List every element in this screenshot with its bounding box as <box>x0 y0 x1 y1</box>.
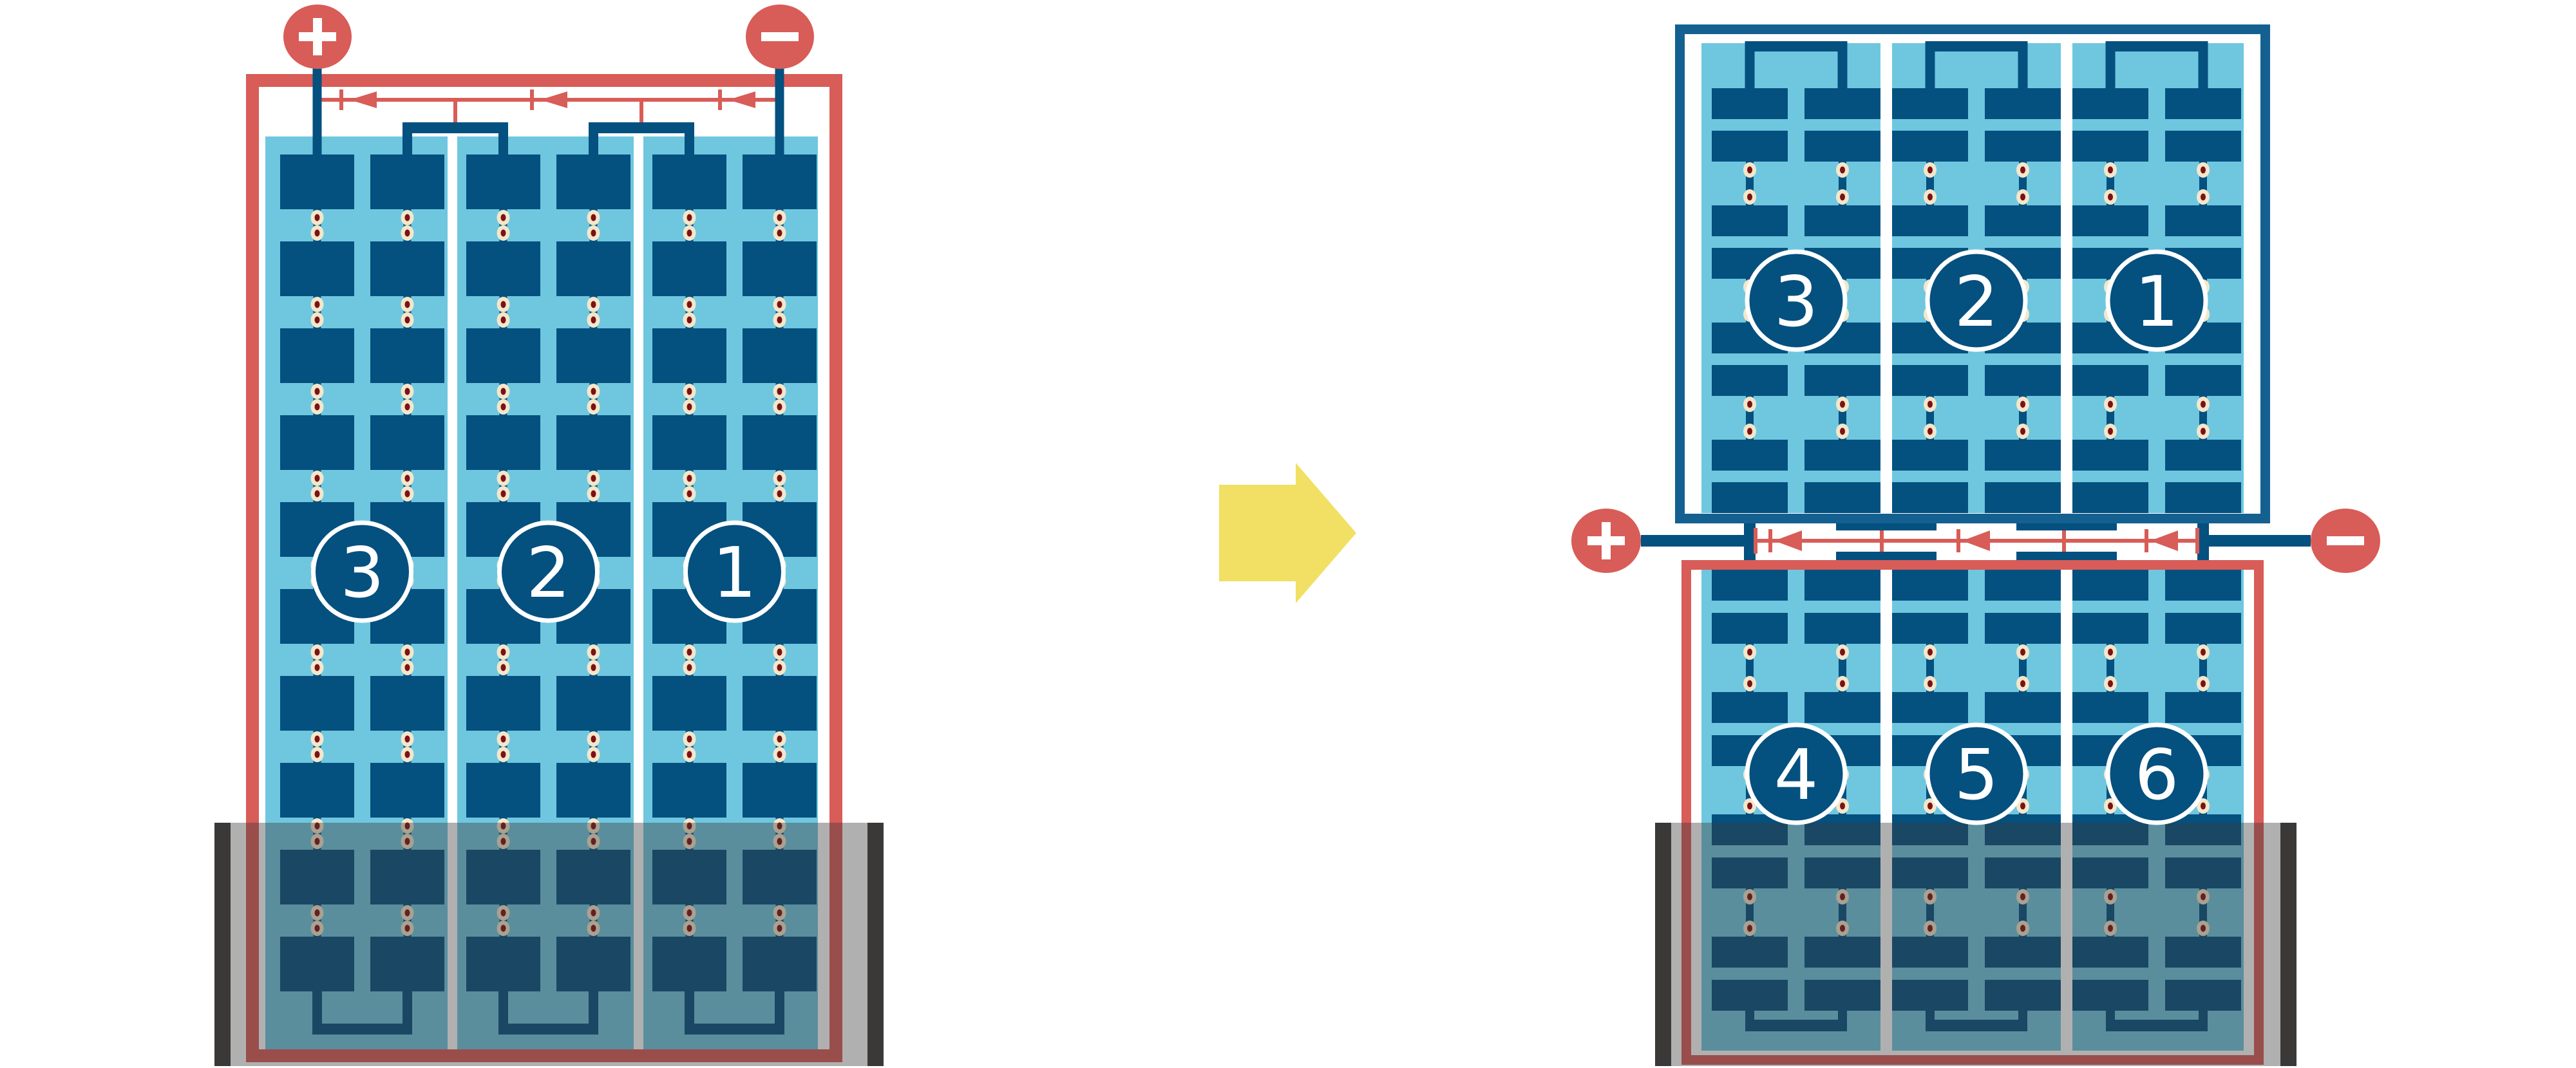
solar-cell <box>2165 131 2241 162</box>
solder-pad-core <box>405 230 410 237</box>
solder-pad-core <box>1747 428 1752 435</box>
solar-cell <box>2072 482 2148 513</box>
string-bridge <box>2106 41 2208 52</box>
solder-pad-core <box>1927 401 1933 408</box>
solder-pad-core <box>1747 401 1752 408</box>
solar-cell <box>280 763 354 818</box>
solder-pad-core <box>2108 194 2113 201</box>
solder-pad-core <box>687 317 692 324</box>
solder-pad-core <box>687 214 692 221</box>
diode-cathode-bar <box>2145 529 2148 552</box>
solder-pad-core <box>687 301 692 308</box>
solder-pad-core <box>777 491 782 498</box>
solder-pad-core <box>777 664 782 671</box>
solar-cell <box>743 155 817 209</box>
solder-pad-core <box>591 736 596 743</box>
solar-cell <box>743 415 817 470</box>
solder-pad-core <box>2020 167 2025 174</box>
solder-pad-core <box>405 475 410 482</box>
solar-cell <box>1985 570 2061 601</box>
string-number: 3 <box>1774 262 1819 342</box>
solder-pad-core <box>501 301 506 308</box>
solar-cell <box>1892 613 1968 644</box>
bypass-diode <box>350 91 377 108</box>
solder-pad-core <box>1840 167 1845 174</box>
solder-pad-core <box>2108 167 2113 174</box>
solar-cell <box>370 328 444 383</box>
solder-pad-core <box>2201 428 2206 435</box>
solder-pad-core <box>2201 803 2206 810</box>
solder-pad-core <box>1927 428 1933 435</box>
solder-pad-core <box>1927 167 1933 174</box>
solder-pad-core <box>591 388 596 395</box>
solder-pad-core <box>1840 680 1845 688</box>
solar-cell <box>1712 440 1788 471</box>
solder-pad-core <box>2201 194 2206 201</box>
solder-pad-core <box>591 664 596 671</box>
string-bridge <box>1838 50 1848 88</box>
string-bridge <box>1926 50 1935 88</box>
solder-pad-core <box>1840 428 1845 435</box>
solar-cell <box>2165 440 2241 471</box>
bypass-diode <box>2150 530 2178 551</box>
solder-pad-core <box>2201 680 2206 688</box>
solar-cell <box>1892 482 1968 513</box>
solder-pad-core <box>315 736 320 743</box>
solar-cell <box>280 241 354 296</box>
solar-cell <box>556 415 630 470</box>
solar-cell <box>370 155 444 209</box>
bypass-diode <box>540 91 567 108</box>
solar-cell <box>1712 131 1788 162</box>
string-number: 4 <box>1774 735 1819 816</box>
solar-cell <box>1804 613 1880 644</box>
solder-pad-core <box>2108 649 2113 656</box>
solder-pad-core <box>2020 803 2025 810</box>
solar-cell <box>2165 570 2241 601</box>
diode-cathode-bar <box>1768 529 1772 552</box>
solder-pad-core <box>777 388 782 395</box>
string-bridge <box>402 132 412 156</box>
solar-cell <box>1892 570 1968 601</box>
diode-tap <box>639 100 643 122</box>
solder-pad-core <box>501 214 506 221</box>
solder-pad-core <box>591 230 596 237</box>
solar-cell <box>2165 482 2241 513</box>
solder-pad-core <box>687 388 692 395</box>
solar-cell <box>370 763 444 818</box>
solar-cell <box>2165 692 2241 723</box>
solder-pad-core <box>1747 167 1752 174</box>
solder-pad-core <box>1840 649 1845 656</box>
solder-pad-core <box>501 388 506 395</box>
minus-icon <box>761 32 799 41</box>
solder-pad-core <box>315 404 320 411</box>
solder-pad-core <box>2108 680 2113 688</box>
solder-pad-core <box>1927 680 1933 688</box>
solder-pad-core <box>501 664 506 671</box>
junction-tab <box>2016 552 2117 560</box>
solar-cell <box>1804 205 1880 236</box>
solder-pad-core <box>777 404 782 411</box>
solder-pad-core <box>591 491 596 498</box>
solder-pad-core <box>501 404 506 411</box>
solar-cell <box>2165 205 2241 236</box>
solder-pad-core <box>315 388 320 395</box>
solder-pad-core <box>2201 649 2206 656</box>
solder-pad-core <box>2020 680 2025 688</box>
string-number: 1 <box>712 533 757 614</box>
solar-cell <box>652 328 726 383</box>
solar-cell <box>1712 692 1788 723</box>
solder-pad-core <box>687 649 692 656</box>
solar-cell <box>280 328 354 383</box>
solder-pad-core <box>1840 194 1845 201</box>
solder-pad-core <box>687 664 692 671</box>
solder-pad-core <box>2108 803 2113 810</box>
solar-cell <box>2072 613 2148 644</box>
terminal-stem <box>775 63 784 155</box>
solar-cell <box>1985 88 2061 119</box>
solar-cell <box>652 763 726 818</box>
string-bridge <box>589 132 598 156</box>
solder-pad-core <box>315 649 320 656</box>
solar-cell <box>2072 205 2148 236</box>
solder-pad-core <box>687 751 692 758</box>
solder-pad-core <box>687 475 692 482</box>
solder-pad-core <box>591 404 596 411</box>
solder-pad-core <box>687 491 692 498</box>
solder-pad-core <box>501 230 506 237</box>
solder-pad-core <box>591 301 596 308</box>
junction-tab <box>1836 552 1937 560</box>
solar-cell <box>2072 131 2148 162</box>
string-bridge <box>1926 41 2028 52</box>
solder-pad-core <box>2020 194 2025 201</box>
water-overlay <box>231 823 867 1066</box>
water-edge-bar <box>214 823 231 1066</box>
solder-pad-core <box>501 491 506 498</box>
solder-pad-core <box>591 317 596 324</box>
solar-cell <box>652 241 726 296</box>
solder-pad-core <box>2201 401 2206 408</box>
solar-cell <box>1892 88 1968 119</box>
solder-pad-core <box>1747 194 1752 201</box>
solar-cell <box>466 241 540 296</box>
solar-cell <box>2165 613 2241 644</box>
solar-cell <box>743 328 817 383</box>
solder-pad-core <box>2108 428 2113 435</box>
solder-pad-core <box>1927 803 1933 810</box>
solar-cell <box>466 415 540 470</box>
solar-cell <box>556 676 630 731</box>
string-number: 2 <box>526 533 571 614</box>
solar-cell <box>1985 482 2061 513</box>
solder-pad-core <box>591 649 596 656</box>
solar-cell <box>652 415 726 470</box>
solar-cell <box>1985 440 2061 471</box>
diagram: 321321456 <box>0 0 2576 1068</box>
solder-pad-core <box>405 649 410 656</box>
diode-tap <box>453 100 457 122</box>
solder-pad-core <box>591 214 596 221</box>
solder-pad-core <box>1747 649 1752 656</box>
solar-cell <box>652 155 726 209</box>
bypass-diode <box>728 91 755 108</box>
solar-cell <box>1712 88 1788 119</box>
solar-cell <box>2072 440 2148 471</box>
diode-cathode-bar <box>530 89 534 110</box>
solar-cell <box>1804 440 1880 471</box>
solder-pad-core <box>405 491 410 498</box>
solder-pad-core <box>405 751 410 758</box>
solder-pad-core <box>315 301 320 308</box>
terminal-wire <box>2209 535 2311 547</box>
solder-pad-core <box>315 230 320 237</box>
negative-terminal <box>746 5 814 69</box>
solder-pad-core <box>315 664 320 671</box>
solder-pad-core <box>1840 803 1845 810</box>
water-edge-bar <box>1655 823 1671 1066</box>
solar-cell <box>743 241 817 296</box>
string-bridge <box>2199 50 2208 88</box>
solar-cell <box>466 763 540 818</box>
solar-cell <box>280 415 354 470</box>
solder-pad-core <box>2201 167 2206 174</box>
solder-pad-core <box>501 649 506 656</box>
junction-tab <box>1836 523 1937 530</box>
solder-pad-core <box>501 317 506 324</box>
bypass-diode <box>1962 530 1990 551</box>
solder-pad-core <box>405 664 410 671</box>
solar-cell <box>1985 365 2061 396</box>
solder-pad-core <box>315 475 320 482</box>
string-bridge <box>685 132 694 156</box>
solder-pad-core <box>687 230 692 237</box>
solder-pad-core <box>777 230 782 237</box>
solder-pad-core <box>777 751 782 758</box>
string-bridge <box>1745 41 1848 52</box>
solar-cell <box>370 415 444 470</box>
solder-pad-core <box>591 751 596 758</box>
solar-cell <box>1712 613 1788 644</box>
solder-pad-core <box>687 404 692 411</box>
flood-overlays <box>214 823 2297 1066</box>
solar-cell <box>1804 692 1880 723</box>
plus-icon <box>1602 522 1611 559</box>
solder-pad-core <box>315 214 320 221</box>
solar-cell <box>1985 692 2061 723</box>
transition-arrow <box>1219 463 1356 603</box>
solar-cell <box>466 155 540 209</box>
junction-bus-end <box>2195 528 2199 554</box>
solar-cell <box>2165 88 2241 119</box>
solar-cell <box>1985 205 2061 236</box>
positive-terminal <box>1571 509 1641 573</box>
solder-pad-core <box>501 736 506 743</box>
solar-cell <box>1985 613 2061 644</box>
solar-cell <box>1892 205 1968 236</box>
solder-pad-core <box>777 301 782 308</box>
solar-cell <box>1712 205 1788 236</box>
solder-pad-core <box>501 751 506 758</box>
solar-cell <box>1892 692 1968 723</box>
water-edge-bar <box>2280 823 2297 1066</box>
solar-cell <box>280 676 354 731</box>
diode-cathode-bar <box>339 89 343 110</box>
string-number: 3 <box>340 533 384 614</box>
solar-cell <box>1712 365 1788 396</box>
terminal-wire <box>1641 535 1744 547</box>
solar-cell <box>1712 570 1788 601</box>
junction-tab <box>2016 523 2117 530</box>
solar-cell <box>1712 482 1788 513</box>
solar-cell <box>556 763 630 818</box>
solder-pad-core <box>315 491 320 498</box>
solar-cell <box>2072 570 2148 601</box>
solder-pad-core <box>1840 401 1845 408</box>
solar-cell <box>370 241 444 296</box>
water-overlay <box>1671 823 2280 1066</box>
junction-bus-end <box>1754 528 1757 554</box>
string-separator <box>1880 43 1892 513</box>
solar-cell <box>466 328 540 383</box>
string-bridge <box>402 122 508 133</box>
solar-cell <box>1804 570 1880 601</box>
string-bridge <box>1745 50 1755 88</box>
solar-cell <box>2072 365 2148 396</box>
solar-cell <box>370 676 444 731</box>
solder-pad-core <box>405 317 410 324</box>
solar-cell <box>556 328 630 383</box>
solar-cell <box>743 763 817 818</box>
string-number: 2 <box>1955 262 1999 342</box>
negative-terminal <box>2311 509 2380 573</box>
solder-pad-core <box>777 475 782 482</box>
solder-pad-core <box>405 404 410 411</box>
right-arrow-icon <box>1219 463 1356 603</box>
solder-pad-core <box>687 736 692 743</box>
solder-pad-core <box>315 317 320 324</box>
solder-pad-core <box>777 317 782 324</box>
string-number: 1 <box>2135 262 2179 342</box>
solder-pad-core <box>777 736 782 743</box>
solder-pad-core <box>405 388 410 395</box>
water-edge-bar <box>867 823 884 1066</box>
solder-pad-core <box>777 649 782 656</box>
string-bridge <box>2018 50 2028 88</box>
solar-cell <box>1892 440 1968 471</box>
solder-pad-core <box>2020 401 2025 408</box>
solder-pad-core <box>1747 680 1752 688</box>
solar-cell <box>2072 88 2148 119</box>
solder-pad-core <box>777 214 782 221</box>
positive-terminal <box>283 5 352 69</box>
solar-cell <box>280 155 354 209</box>
solar-cell <box>2165 365 2241 396</box>
solder-pad-core <box>501 475 506 482</box>
string-bridge <box>498 132 508 156</box>
string-separator <box>2061 43 2072 513</box>
solder-pad-core <box>405 736 410 743</box>
solar-cell <box>1804 365 1880 396</box>
diode-cathode-bar <box>718 89 722 110</box>
string-number: 5 <box>1955 735 1999 816</box>
solder-pad-core <box>405 214 410 221</box>
solder-pad-core <box>591 475 596 482</box>
solar-cell <box>1804 88 1880 119</box>
solar-cell <box>1804 482 1880 513</box>
solar-cell <box>1892 131 1968 162</box>
solder-pad-core <box>2020 428 2025 435</box>
solar-cell <box>2072 692 2148 723</box>
solar-cell <box>556 241 630 296</box>
solar-cell <box>1985 131 2061 162</box>
solar-cell <box>1892 365 1968 396</box>
solar-cell <box>652 676 726 731</box>
minus-icon <box>2327 536 2364 545</box>
plus-icon <box>313 18 322 55</box>
string-bridge <box>2106 50 2116 88</box>
solar-cell <box>556 155 630 209</box>
terminal-stem <box>313 63 322 155</box>
diagram-canvas: 321321456 <box>0 0 2576 1068</box>
solar-cell <box>1804 131 1880 162</box>
solar-cell <box>743 676 817 731</box>
solder-pad-core <box>1927 649 1933 656</box>
solder-pad-core <box>1747 803 1752 810</box>
solder-pad-core <box>2108 401 2113 408</box>
solder-pad-core <box>315 751 320 758</box>
solder-pad-core <box>405 301 410 308</box>
diode-cathode-bar <box>1956 529 1960 552</box>
string-bridge <box>589 122 694 133</box>
solder-pad-core <box>2020 649 2025 656</box>
bypass-diode <box>1774 530 1802 551</box>
solder-pad-core <box>1927 194 1933 201</box>
solar-cell <box>466 676 540 731</box>
string-number: 6 <box>2135 735 2179 816</box>
